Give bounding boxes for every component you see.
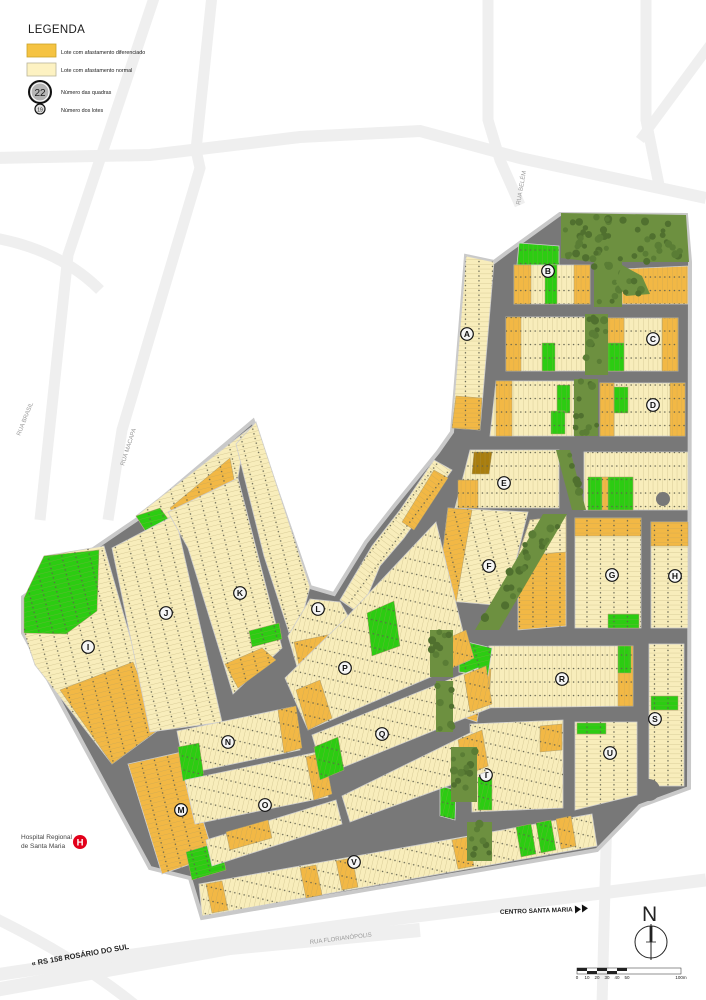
svg-text:D: D xyxy=(650,400,656,410)
svg-text:G: G xyxy=(609,570,616,580)
svg-text:Número dos lotes: Número dos lotes xyxy=(61,108,104,114)
svg-text:I: I xyxy=(87,642,89,652)
svg-text:S: S xyxy=(652,714,658,724)
svg-text:M: M xyxy=(177,805,184,815)
svg-text:F: F xyxy=(486,561,491,571)
svg-text:100m: 100m xyxy=(675,975,687,980)
svg-text:A: A xyxy=(464,329,470,339)
svg-text:30: 30 xyxy=(604,975,610,980)
svg-text:N: N xyxy=(225,737,231,747)
svg-text:H: H xyxy=(77,838,84,849)
svg-text:20: 20 xyxy=(594,975,600,980)
svg-text:U: U xyxy=(607,748,613,758)
svg-text:de Santa Maria: de Santa Maria xyxy=(21,843,65,850)
svg-text:O: O xyxy=(262,800,269,810)
svg-text:H: H xyxy=(672,571,678,581)
svg-text:10: 10 xyxy=(584,975,590,980)
svg-text:Hospital Regional: Hospital Regional xyxy=(21,834,73,841)
svg-text:K: K xyxy=(237,588,244,598)
svg-text:19: 19 xyxy=(37,108,43,114)
svg-text:N: N xyxy=(642,903,657,926)
svg-text:E: E xyxy=(501,478,507,488)
svg-text:R: R xyxy=(559,674,565,684)
svg-text:C: C xyxy=(650,334,656,344)
svg-text:22: 22 xyxy=(34,88,46,99)
svg-text:B: B xyxy=(545,266,551,276)
svg-text:Q: Q xyxy=(379,729,386,739)
svg-text:50: 50 xyxy=(624,975,630,980)
svg-text:Lote com afastamento diferenci: Lote com afastamento diferenciado xyxy=(61,50,145,56)
svg-text:Número das quadras: Número das quadras xyxy=(61,90,112,96)
svg-text:V: V xyxy=(351,857,357,867)
svg-text:L: L xyxy=(315,604,320,614)
svg-text:40: 40 xyxy=(614,975,620,980)
svg-text:J: J xyxy=(164,608,169,618)
svg-text:LEGENDA: LEGENDA xyxy=(28,24,85,36)
svg-text:P: P xyxy=(342,663,348,673)
svg-text:Lote com afastamento normal: Lote com afastamento normal xyxy=(61,68,132,74)
